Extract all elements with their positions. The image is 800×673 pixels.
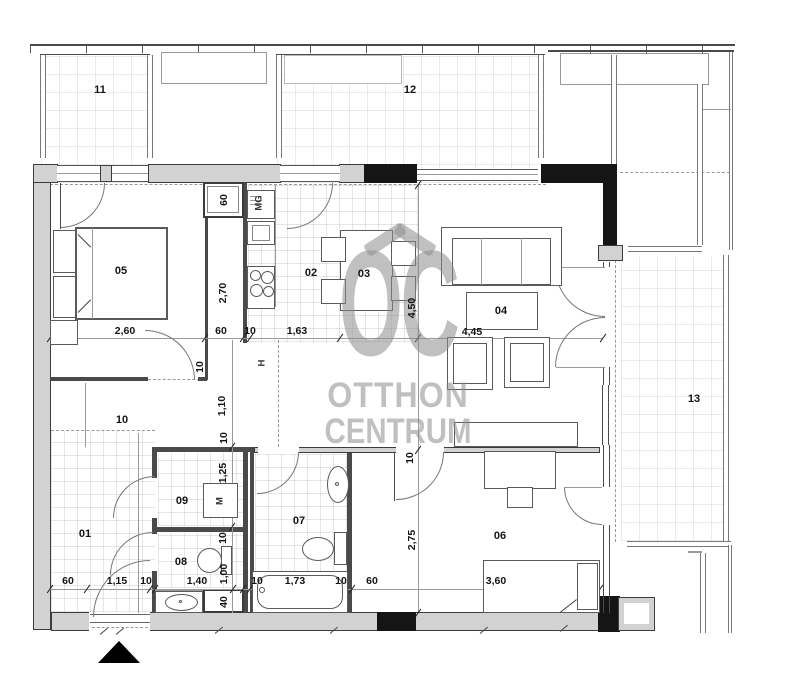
- dim-label-10: 10: [335, 575, 347, 587]
- line: [521, 238, 522, 285]
- door-leaf: [60, 183, 61, 229]
- balcony-13-railing: [627, 541, 731, 547]
- bathtub-drain: [259, 587, 265, 593]
- wall-segment: [598, 245, 623, 261]
- line: [92, 228, 93, 319]
- neighbour-wall: [611, 55, 617, 173]
- wall-segment: [148, 164, 281, 183]
- wall-opening: [602, 487, 611, 525]
- desk: [484, 451, 556, 489]
- dim-label-10: 10: [244, 325, 256, 337]
- dim-label-10: 10: [218, 432, 230, 444]
- toilet-tank: [334, 532, 347, 565]
- dashed-line: [51, 430, 155, 431]
- dim-label-40: 40: [218, 596, 230, 608]
- line: [688, 551, 702, 553]
- room-label-02: 02: [305, 267, 317, 279]
- room-label-05: 05: [115, 265, 127, 277]
- door-leaf: [564, 487, 602, 488]
- wall-left: [33, 164, 51, 630]
- balcony-door-arc: [555, 317, 605, 367]
- dim-label-1,10: 1,10: [216, 396, 228, 416]
- line: [703, 109, 731, 110]
- dim-label-2,70: 2,70: [217, 283, 229, 303]
- room-label-07: 07: [293, 515, 305, 527]
- kitchen-counter-edge: [275, 185, 276, 307]
- pillow: [577, 563, 598, 610]
- line: [417, 174, 538, 175]
- burner: [263, 286, 274, 297]
- canopy: [560, 53, 709, 85]
- dim-label-60: 60: [218, 194, 230, 206]
- balcony-door-arc: [555, 267, 605, 317]
- wall-segment: [339, 164, 365, 183]
- wall-opening: [624, 603, 649, 624]
- wall-structural: [541, 164, 617, 183]
- neighbour-wall: [700, 553, 706, 633]
- nightstand: [53, 230, 76, 273]
- dim-label-4,50: 4,50: [406, 298, 418, 318]
- burner: [261, 271, 274, 284]
- door-leaf: [556, 267, 605, 268]
- dim-label-10: 10: [140, 575, 152, 587]
- wall-segment: [100, 165, 112, 182]
- line: [40, 54, 150, 55]
- desk-chair: [507, 487, 533, 508]
- dim-label-1,00: 1,00: [218, 564, 230, 584]
- balcony-13-floor: [621, 256, 724, 541]
- room-label-08: 08: [175, 556, 187, 568]
- burner: [250, 270, 261, 281]
- dim-label-1,40: 1,40: [187, 575, 207, 587]
- door-leaf: [556, 367, 605, 368]
- room-label-10: 10: [116, 414, 128, 426]
- dim-label-1,73: 1,73: [285, 575, 305, 587]
- dim-label-2,75: 2,75: [406, 530, 418, 550]
- line: [85, 383, 86, 447]
- line: [481, 238, 482, 285]
- line: [280, 173, 340, 174]
- balcony-11-railing: [147, 55, 153, 158]
- room-label-09: 09: [176, 495, 188, 507]
- window: [417, 169, 538, 181]
- floor-plan: OC OTTHON CENTRUM 0102030405060708091011…: [0, 0, 800, 673]
- watermark-line1: OTTHON: [327, 376, 468, 416]
- dim-label-60: 60: [62, 575, 74, 587]
- line: [152, 447, 254, 452]
- dashed-line: [278, 340, 279, 447]
- dim-label-10: 10: [194, 361, 206, 373]
- balcony-13-railing: [723, 255, 729, 542]
- balcony-13-railing: [628, 246, 702, 252]
- line: [548, 50, 734, 52]
- room-label-12: 12: [404, 84, 416, 96]
- door-leaf: [394, 452, 395, 501]
- room-label-13: 13: [688, 393, 700, 405]
- dim-label-3,60: 3,60: [486, 575, 506, 587]
- cabinet: [50, 320, 78, 345]
- dimension-line: [232, 340, 233, 613]
- wall-structural: [377, 612, 416, 631]
- window: [608, 385, 609, 445]
- tv-cabinet: [454, 422, 578, 447]
- wall-structural: [364, 164, 417, 183]
- dashed-line: [620, 172, 730, 173]
- dim-label-10: 10: [404, 452, 416, 464]
- dim-label-4,45: 4,45: [462, 326, 482, 338]
- fixture: [179, 600, 182, 603]
- dim-label-1,63: 1,63: [287, 325, 307, 337]
- tag-label-MG: MG: [254, 195, 265, 210]
- room-label-11: 11: [94, 84, 106, 96]
- window: [602, 385, 603, 445]
- room-label-03: 03: [358, 268, 370, 280]
- fixture: [335, 482, 339, 486]
- detail-line: [252, 225, 270, 241]
- dim-label-1,25: 1,25: [217, 463, 229, 483]
- dashed-line: [615, 255, 616, 542]
- dashed-line: [92, 627, 148, 628]
- door-arc: [60, 183, 105, 228]
- canopy: [284, 55, 402, 84]
- line: [51, 377, 148, 381]
- line: [198, 377, 207, 381]
- neighbour-wall: [728, 545, 732, 633]
- canopy: [161, 52, 267, 84]
- balcony-12-railing: [276, 55, 282, 158]
- burner: [250, 284, 263, 297]
- wall-segment: [33, 164, 58, 183]
- neighbour-wall: [729, 52, 733, 250]
- watermark-logo: OC: [339, 244, 457, 362]
- dim-label-10: 10: [217, 532, 229, 544]
- furniture-detail: [510, 343, 544, 382]
- balcony-11-railing: [40, 55, 46, 158]
- wall-structural: [603, 183, 617, 246]
- dim-label-1,15: 1,15: [107, 575, 127, 587]
- room-label-06: 06: [494, 530, 506, 542]
- room-label-01: 01: [79, 528, 91, 540]
- tag-label-H: H: [257, 360, 268, 367]
- furniture-detail: [452, 238, 551, 285]
- dim-label-60: 60: [215, 325, 227, 337]
- dim-label-10: 10: [251, 575, 263, 587]
- line: [152, 452, 157, 478]
- watermark-line2: CENTRUM: [325, 412, 472, 452]
- dim-label-2,60: 2,60: [115, 325, 135, 337]
- balcony-door-arc: [564, 487, 602, 525]
- entrance-marker: [98, 641, 140, 663]
- room-label-04: 04: [495, 305, 507, 317]
- toilet: [302, 537, 334, 561]
- dim-label-60: 60: [366, 575, 378, 587]
- nightstand: [53, 276, 76, 318]
- balcony-12-railing: [538, 55, 544, 158]
- tag-label-M: M: [215, 497, 226, 505]
